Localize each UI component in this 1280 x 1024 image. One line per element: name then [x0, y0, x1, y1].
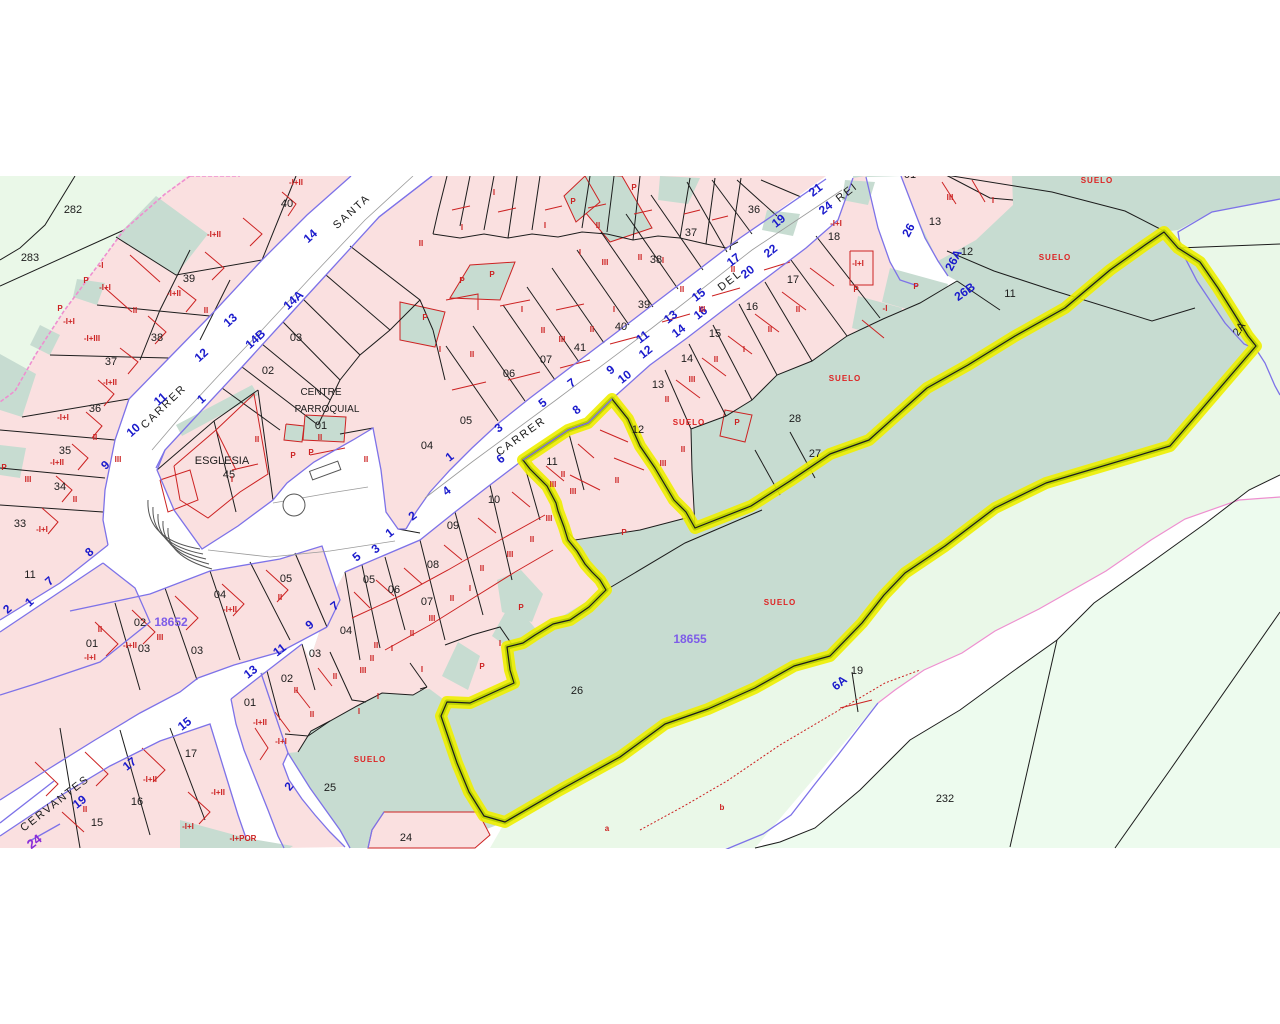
- svg-text:P: P: [621, 528, 627, 537]
- svg-text:II: II: [93, 433, 97, 442]
- svg-text:13: 13: [929, 216, 941, 228]
- svg-text:SUELO: SUELO: [673, 418, 706, 427]
- svg-text:I: I: [499, 639, 501, 648]
- svg-text:38: 38: [650, 254, 662, 266]
- svg-text:05: 05: [280, 573, 292, 585]
- svg-text:III: III: [25, 475, 32, 484]
- svg-text:16: 16: [746, 301, 758, 313]
- svg-text:III: III: [660, 459, 667, 468]
- svg-text:II: II: [590, 325, 594, 334]
- svg-text:-I+II: -I+II: [289, 178, 303, 187]
- svg-text:P: P: [631, 183, 637, 192]
- svg-text:02: 02: [134, 617, 146, 629]
- svg-text:II: II: [596, 221, 600, 230]
- svg-text:II: II: [410, 629, 414, 638]
- svg-text:05: 05: [460, 415, 472, 427]
- svg-text:II: II: [450, 594, 454, 603]
- svg-text:II: II: [419, 239, 423, 248]
- svg-text:II: II: [480, 564, 484, 573]
- svg-text:-I+I: -I+I: [99, 283, 111, 292]
- svg-text:10: 10: [488, 494, 500, 506]
- svg-text:P: P: [308, 448, 314, 457]
- svg-text:25: 25: [324, 782, 336, 794]
- svg-text:I: I: [231, 475, 233, 484]
- svg-text:I: I: [544, 221, 546, 230]
- svg-text:III: III: [507, 550, 514, 559]
- svg-text:III: III: [360, 666, 367, 675]
- svg-text:III: III: [947, 193, 954, 202]
- svg-text:PARROQUIAL: PARROQUIAL: [295, 404, 360, 415]
- svg-text:III: III: [689, 375, 696, 384]
- svg-text:II: II: [255, 435, 259, 444]
- svg-text:a: a: [605, 824, 610, 833]
- svg-text:SUELO: SUELO: [354, 755, 387, 764]
- svg-text:-I: -I: [883, 304, 888, 313]
- svg-text:232: 232: [936, 793, 954, 805]
- svg-text:-I+II: -I+II: [223, 605, 237, 614]
- svg-text:16: 16: [131, 796, 143, 808]
- svg-text:I: I: [358, 707, 360, 716]
- svg-text:-I+II: -I+II: [207, 230, 221, 239]
- svg-text:03: 03: [191, 645, 203, 657]
- svg-text:11: 11: [546, 456, 557, 468]
- svg-text:III: III: [559, 335, 566, 344]
- svg-text:-I+I: -I+I: [275, 737, 287, 746]
- svg-text:I: I: [992, 196, 994, 205]
- svg-text:06: 06: [503, 368, 515, 380]
- svg-text:II: II: [530, 535, 534, 544]
- svg-text:01: 01: [244, 697, 256, 709]
- svg-text:07: 07: [421, 596, 433, 608]
- svg-text:18652: 18652: [154, 615, 188, 629]
- svg-text:II: II: [318, 433, 322, 442]
- svg-text:III: III: [546, 514, 553, 523]
- svg-text:II: II: [680, 285, 684, 294]
- svg-text:III: III: [429, 614, 436, 623]
- svg-text:07: 07: [540, 354, 552, 366]
- svg-text:18655: 18655: [673, 632, 707, 646]
- svg-text:12: 12: [632, 424, 644, 436]
- svg-text:II: II: [133, 306, 137, 315]
- svg-text:01: 01: [315, 420, 327, 432]
- svg-text:II: II: [83, 805, 87, 814]
- svg-text:II: II: [333, 672, 337, 681]
- svg-text:II: II: [665, 395, 669, 404]
- svg-text:P: P: [57, 304, 63, 313]
- svg-text:41: 41: [574, 342, 586, 354]
- svg-text:282: 282: [64, 204, 82, 216]
- svg-text:P: P: [290, 451, 296, 460]
- svg-text:I: I: [579, 248, 581, 257]
- svg-text:P: P: [1, 463, 7, 472]
- svg-text:40: 40: [281, 198, 293, 210]
- svg-text:II: II: [541, 326, 545, 335]
- svg-text:P: P: [913, 282, 919, 291]
- svg-text:II: II: [278, 593, 282, 602]
- svg-text:08: 08: [427, 559, 439, 571]
- svg-text:SUELO: SUELO: [1081, 176, 1114, 185]
- svg-text:P: P: [422, 313, 428, 322]
- svg-text:I: I: [421, 665, 423, 674]
- svg-text:-I+II: -I+II: [50, 458, 64, 467]
- svg-text:03: 03: [290, 332, 302, 344]
- svg-text:II: II: [638, 253, 642, 262]
- svg-text:-I+I: -I+I: [84, 653, 96, 662]
- svg-text:III: III: [157, 633, 164, 642]
- svg-text:35: 35: [59, 445, 71, 457]
- svg-text:24: 24: [400, 832, 412, 844]
- svg-text:II: II: [731, 265, 735, 274]
- svg-text:15: 15: [709, 328, 721, 340]
- svg-text:I: I: [743, 345, 745, 354]
- svg-text:38: 38: [151, 332, 163, 344]
- svg-text:28: 28: [789, 413, 801, 425]
- svg-text:-I+I: -I+I: [830, 219, 842, 228]
- svg-text:II: II: [73, 495, 77, 504]
- svg-text:P: P: [83, 276, 89, 285]
- svg-text:02: 02: [262, 365, 274, 377]
- svg-text:P: P: [459, 276, 465, 285]
- svg-text:-I: -I: [99, 261, 104, 270]
- svg-text:39: 39: [638, 299, 650, 311]
- svg-text:26: 26: [571, 685, 583, 697]
- svg-text:CENTRE: CENTRE: [300, 387, 341, 398]
- svg-text:-I+I: -I+I: [57, 413, 69, 422]
- svg-text:-I+II: -I+II: [143, 775, 157, 784]
- svg-text:-I+I: -I+I: [63, 317, 75, 326]
- svg-text:I: I: [493, 188, 495, 197]
- svg-text:P: P: [518, 603, 524, 612]
- svg-text:-I+II: -I+II: [253, 718, 267, 727]
- svg-text:36: 36: [89, 403, 101, 415]
- svg-text:-I+II: -I+II: [103, 378, 117, 387]
- svg-text:02: 02: [281, 673, 293, 685]
- svg-text:II: II: [714, 355, 718, 364]
- svg-text:SUELO: SUELO: [764, 598, 797, 607]
- svg-text:36: 36: [748, 204, 760, 216]
- svg-text:13: 13: [652, 379, 664, 391]
- svg-text:27: 27: [809, 448, 821, 460]
- svg-text:04: 04: [214, 589, 226, 601]
- svg-text:II: II: [294, 686, 298, 695]
- svg-text:II: II: [370, 654, 374, 663]
- svg-text:33: 33: [14, 518, 26, 530]
- svg-text:I: I: [469, 584, 471, 593]
- svg-text:II: II: [615, 476, 619, 485]
- svg-text:17: 17: [185, 748, 197, 760]
- svg-text:II: II: [374, 641, 378, 650]
- svg-text:19: 19: [851, 665, 863, 677]
- svg-text:II: II: [561, 470, 565, 479]
- svg-text:14: 14: [681, 353, 693, 365]
- svg-text:11: 11: [1004, 288, 1015, 300]
- svg-text:P: P: [570, 197, 576, 206]
- svg-text:II: II: [470, 350, 474, 359]
- svg-text:05: 05: [363, 574, 375, 586]
- svg-text:09: 09: [447, 520, 459, 532]
- svg-text:III: III: [115, 455, 122, 464]
- svg-text:II: II: [204, 306, 208, 315]
- svg-text:II: II: [364, 455, 368, 464]
- svg-text:39: 39: [183, 273, 195, 285]
- svg-text:-I+POR: -I+POR: [230, 834, 257, 843]
- svg-text:-I+II: -I+II: [211, 788, 225, 797]
- svg-text:III: III: [602, 258, 609, 267]
- svg-text:-I+II: -I+II: [123, 641, 137, 650]
- svg-text:-I+I: -I+I: [182, 822, 194, 831]
- svg-text:I: I: [662, 256, 664, 265]
- svg-text:03: 03: [309, 648, 321, 660]
- svg-text:I: I: [461, 223, 463, 232]
- svg-text:P: P: [479, 662, 485, 671]
- svg-text:11: 11: [24, 569, 35, 581]
- svg-text:15: 15: [91, 817, 103, 829]
- svg-text:P: P: [489, 270, 495, 279]
- svg-text:283: 283: [21, 252, 39, 264]
- svg-text:04: 04: [421, 440, 433, 452]
- svg-text:b: b: [720, 803, 725, 812]
- svg-text:18: 18: [828, 231, 840, 243]
- svg-text:37: 37: [105, 356, 117, 368]
- svg-text:ESGLESIA: ESGLESIA: [195, 455, 250, 467]
- svg-text:I: I: [391, 644, 393, 653]
- svg-text:04: 04: [340, 625, 352, 637]
- svg-text:45: 45: [223, 469, 235, 481]
- svg-text:-I+I: -I+I: [852, 259, 864, 268]
- svg-text:40: 40: [615, 321, 627, 333]
- svg-text:I: I: [613, 305, 615, 314]
- svg-text:III: III: [570, 487, 577, 496]
- svg-text:SUELO: SUELO: [1039, 253, 1072, 262]
- svg-text:06: 06: [388, 584, 400, 596]
- svg-text:II: II: [768, 325, 772, 334]
- svg-text:III: III: [699, 305, 706, 314]
- svg-text:I: I: [521, 305, 523, 314]
- svg-text:-I+II: -I+II: [167, 289, 181, 298]
- svg-text:P: P: [734, 418, 740, 427]
- svg-text:37: 37: [685, 227, 697, 239]
- svg-text:I: I: [439, 345, 441, 354]
- svg-text:-I+I: -I+I: [36, 525, 48, 534]
- svg-text:II: II: [310, 710, 314, 719]
- svg-text:17: 17: [787, 274, 799, 286]
- svg-text:I: I: [377, 692, 379, 701]
- svg-text:II: II: [796, 305, 800, 314]
- svg-text:II: II: [98, 625, 102, 634]
- svg-text:III: III: [550, 480, 557, 489]
- svg-text:SUELO: SUELO: [829, 374, 862, 383]
- svg-text:01: 01: [86, 638, 98, 650]
- svg-text:34: 34: [54, 481, 66, 493]
- svg-text:P: P: [853, 285, 859, 294]
- svg-text:-I+III: -I+III: [84, 334, 100, 343]
- svg-text:03: 03: [138, 643, 150, 655]
- svg-text:II: II: [681, 445, 685, 454]
